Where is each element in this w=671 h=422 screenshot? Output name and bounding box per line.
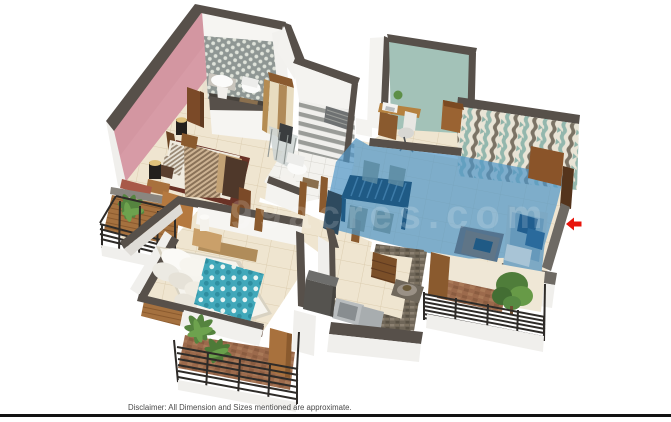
svg-text:99acres.com: 99acres.com xyxy=(230,193,549,237)
svg-text:Disclaimer: All Dimension and: Disclaimer: All Dimension and Sizes ment… xyxy=(128,403,352,412)
